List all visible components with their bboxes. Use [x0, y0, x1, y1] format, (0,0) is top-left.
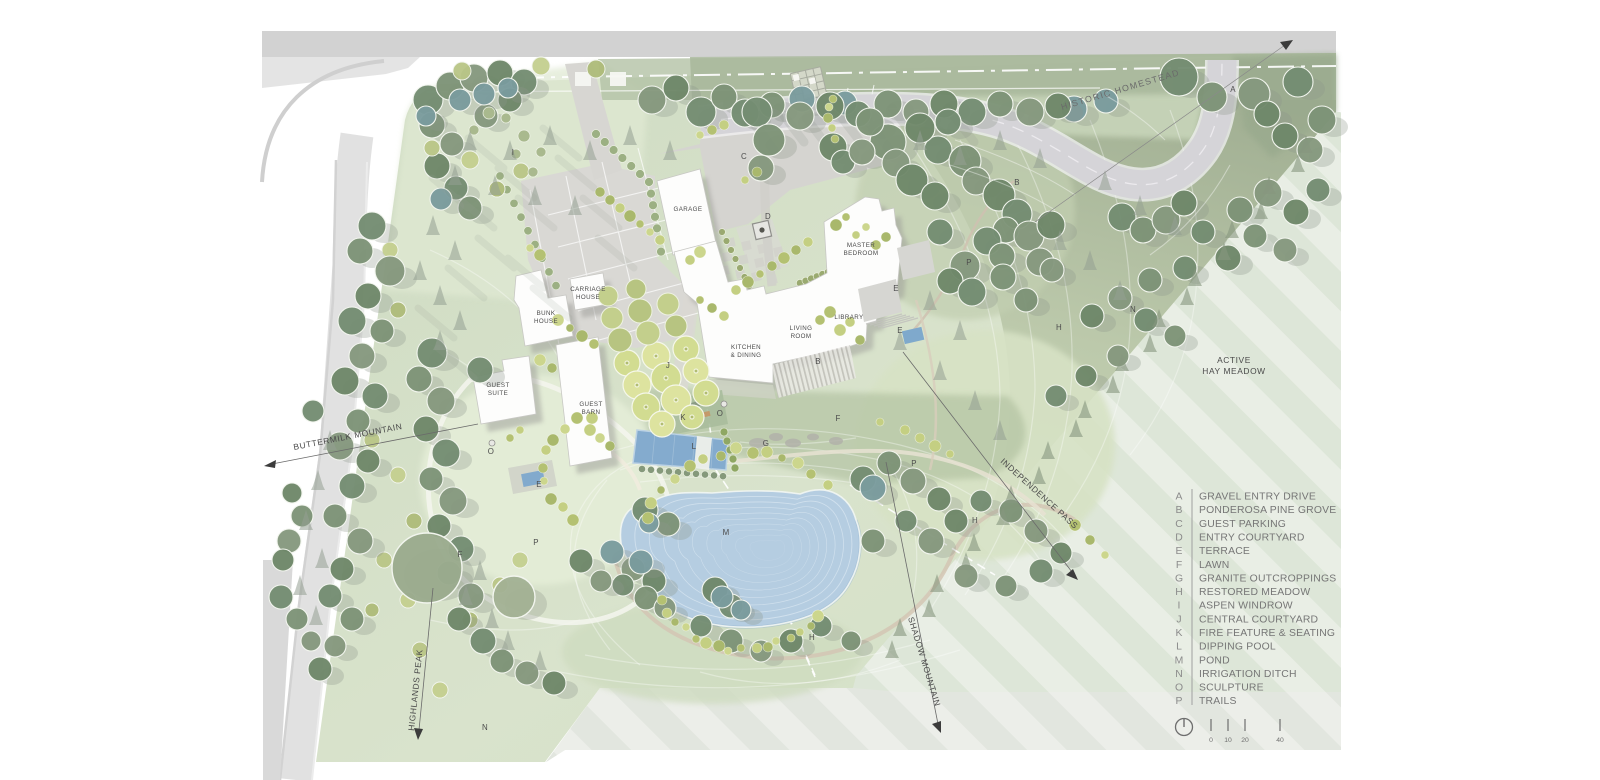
- svg-text:SCULPTURE: SCULPTURE: [1199, 683, 1264, 694]
- svg-text:F: F: [1176, 560, 1182, 571]
- svg-text:C: C: [741, 152, 747, 161]
- svg-text:TERRACE: TERRACE: [1199, 546, 1250, 557]
- svg-text:E: E: [536, 480, 542, 489]
- svg-text:N: N: [1175, 669, 1183, 680]
- svg-text:N: N: [482, 723, 488, 732]
- svg-text:ASPEN WINDROW: ASPEN WINDROW: [1199, 601, 1293, 612]
- svg-text:BARN: BARN: [582, 409, 601, 416]
- svg-text:ACTIVE: ACTIVE: [1217, 355, 1251, 365]
- svg-text:20: 20: [1241, 737, 1249, 744]
- svg-text:G: G: [763, 439, 769, 448]
- svg-text:A: A: [1230, 85, 1236, 94]
- svg-text:10: 10: [1224, 737, 1232, 744]
- svg-text:E: E: [893, 284, 899, 293]
- svg-text:LIVING: LIVING: [790, 325, 813, 332]
- svg-text:GUEST PARKING: GUEST PARKING: [1199, 519, 1286, 530]
- svg-text:0: 0: [1209, 737, 1213, 744]
- svg-text:POND: POND: [1199, 655, 1230, 666]
- svg-text:P: P: [966, 258, 972, 267]
- svg-text:B: B: [815, 357, 821, 366]
- svg-text:A: A: [1176, 492, 1183, 503]
- svg-text:IRRIGATION DITCH: IRRIGATION DITCH: [1199, 669, 1297, 680]
- svg-text:H: H: [1056, 323, 1062, 332]
- svg-text:BUNK: BUNK: [537, 310, 556, 317]
- svg-text:J: J: [666, 361, 670, 370]
- svg-text:GRAVEL ENTRY DRIVE: GRAVEL ENTRY DRIVE: [1199, 492, 1316, 503]
- svg-text:HOUSE: HOUSE: [534, 318, 558, 325]
- svg-text:H: H: [809, 633, 815, 642]
- svg-text:FIRE FEATURE & SEATING: FIRE FEATURE & SEATING: [1199, 628, 1335, 639]
- svg-text:N: N: [1130, 305, 1136, 314]
- svg-text:SUITE: SUITE: [488, 390, 508, 397]
- svg-text:D: D: [1175, 533, 1183, 544]
- svg-text:DIPPING POOL: DIPPING POOL: [1199, 642, 1276, 653]
- svg-text:F: F: [457, 550, 462, 559]
- svg-text:I: I: [512, 148, 515, 157]
- svg-text:H: H: [972, 516, 978, 525]
- svg-text:F: F: [835, 414, 840, 423]
- svg-text:B: B: [1176, 505, 1183, 516]
- svg-text:H: H: [1175, 587, 1183, 598]
- svg-text:K: K: [680, 413, 686, 422]
- svg-text:G: G: [1175, 573, 1183, 584]
- svg-text:C: C: [1175, 519, 1183, 530]
- svg-text:L: L: [692, 442, 697, 451]
- svg-text:J: J: [1176, 614, 1181, 625]
- svg-text:M: M: [723, 528, 730, 537]
- svg-text:M: M: [1175, 655, 1184, 666]
- svg-text:D: D: [765, 212, 771, 221]
- svg-text:O: O: [717, 409, 723, 418]
- svg-text:K: K: [1176, 628, 1183, 639]
- svg-text:TRAILS: TRAILS: [1199, 696, 1237, 707]
- svg-text:ROOM: ROOM: [791, 333, 812, 340]
- svg-text:GRANITE OUTCROPPINGS: GRANITE OUTCROPPINGS: [1199, 573, 1336, 584]
- svg-text:LAWN: LAWN: [1199, 560, 1229, 571]
- svg-text:GARAGE: GARAGE: [674, 206, 703, 213]
- svg-text:CARRIAGE: CARRIAGE: [570, 286, 606, 293]
- svg-text:O: O: [1175, 683, 1183, 694]
- svg-text:PONDEROSA PINE GROVE: PONDEROSA PINE GROVE: [1199, 505, 1336, 516]
- svg-text:CENTRAL COURTYARD: CENTRAL COURTYARD: [1199, 614, 1318, 625]
- svg-text:HOUSE: HOUSE: [576, 294, 600, 301]
- svg-text:RESTORED MEADOW: RESTORED MEADOW: [1199, 587, 1310, 598]
- svg-text:E: E: [897, 326, 903, 335]
- svg-text:ENTRY COURTYARD: ENTRY COURTYARD: [1199, 533, 1305, 544]
- svg-text:E: E: [1176, 546, 1183, 557]
- svg-text:P: P: [911, 459, 917, 468]
- svg-text:LIBRARY: LIBRARY: [834, 314, 863, 321]
- svg-text:40: 40: [1276, 737, 1284, 744]
- svg-text:& DINING: & DINING: [731, 352, 762, 359]
- svg-text:P: P: [533, 538, 539, 547]
- svg-text:MASTER: MASTER: [847, 242, 875, 249]
- svg-text:BEDROOM: BEDROOM: [844, 250, 879, 257]
- svg-text:GUEST: GUEST: [579, 401, 602, 408]
- svg-text:B: B: [1014, 178, 1020, 187]
- svg-text:P: P: [1176, 696, 1183, 707]
- svg-text:L: L: [1176, 642, 1182, 653]
- svg-text:GUEST: GUEST: [486, 382, 509, 389]
- svg-text:O: O: [488, 447, 494, 456]
- svg-text:HAY MEADOW: HAY MEADOW: [1202, 366, 1265, 376]
- svg-text:I: I: [1178, 601, 1181, 612]
- svg-text:KITCHEN: KITCHEN: [731, 344, 761, 351]
